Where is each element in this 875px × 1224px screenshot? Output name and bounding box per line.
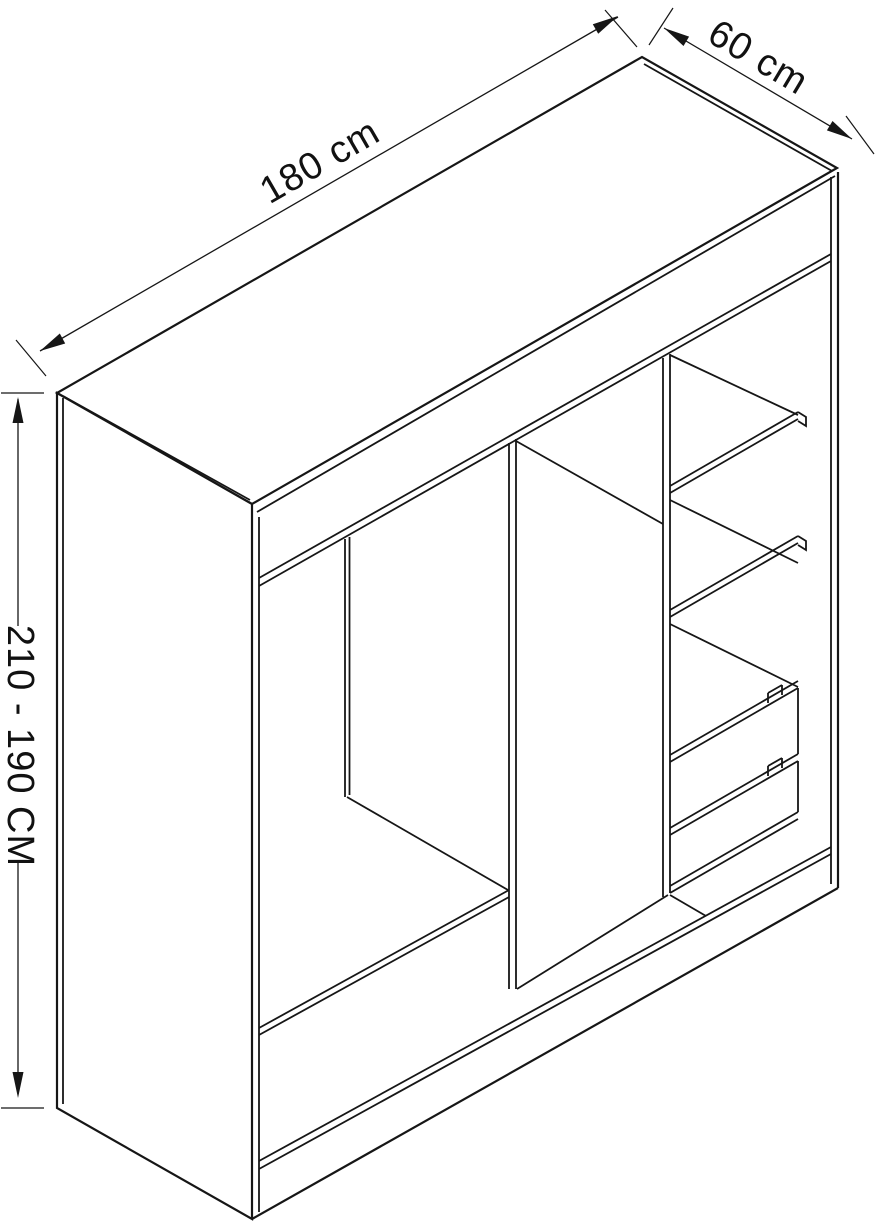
height-arrowhead-top bbox=[13, 397, 24, 423]
wardrobe-cabinet bbox=[57, 57, 838, 1219]
right-shelf-lower bbox=[670, 536, 806, 687]
depth-arrowhead-left bbox=[664, 28, 689, 46]
left-bottom-shelf bbox=[259, 890, 509, 1035]
middle-divider-top-edge bbox=[516, 441, 663, 524]
height-dimension: 210 - 190 CM bbox=[0, 393, 44, 1108]
width-arrowhead-left bbox=[40, 334, 65, 352]
cabinet-right-panel bbox=[831, 172, 838, 888]
wardrobe-drawing-svg: 180 cm 60 cm 210 - 190 CM bbox=[0, 0, 875, 1224]
right-shelf-upper bbox=[670, 412, 806, 563]
height-arrowhead-bottom bbox=[13, 1072, 24, 1098]
right-divider-top-edge bbox=[670, 355, 798, 415]
cabinet-top-face bbox=[57, 57, 837, 512]
width-arrowhead-right bbox=[593, 16, 618, 34]
width-dimension-tick-right bbox=[605, 10, 637, 47]
depth-dimension-label: 60 cm bbox=[701, 12, 816, 104]
left-half-divider-bottom-edge bbox=[347, 797, 508, 890]
depth-dimension-tick-right bbox=[846, 116, 874, 154]
height-dimension-label: 210 - 190 CM bbox=[0, 625, 41, 867]
drawer-2 bbox=[670, 754, 798, 893]
right-divider-bottom-edge bbox=[670, 895, 706, 916]
right-shelf-lower-side-edge bbox=[670, 624, 798, 687]
cabinet-left-panel bbox=[57, 393, 252, 1219]
depth-arrowhead-right bbox=[827, 121, 852, 139]
middle-bottom-shelf bbox=[517, 895, 668, 989]
wardrobe-diagram: 180 cm 60 cm 210 - 190 CM bbox=[0, 0, 875, 1224]
width-dimension-tick-left bbox=[16, 340, 46, 376]
depth-dimension-tick-left bbox=[649, 8, 673, 45]
cabinet-base bbox=[252, 847, 838, 1219]
middle-divider bbox=[509, 439, 663, 989]
drawer-1 bbox=[670, 681, 798, 762]
left-half-divider bbox=[345, 537, 508, 890]
